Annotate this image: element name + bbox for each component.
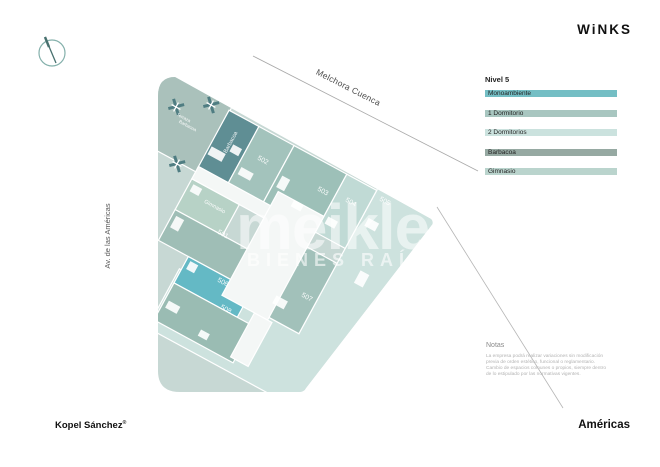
project-name: Américas xyxy=(578,419,630,431)
notes-body: La empresa podrá realizar variaciones si… xyxy=(486,354,606,378)
page: Melchora Cuenca Av. de las Américas xyxy=(0,0,660,467)
legend-title: Nivel 5 xyxy=(485,75,509,84)
compass-icon xyxy=(39,37,65,66)
legend-item: 2 Dormitorios xyxy=(485,129,617,136)
legend-item: 1 Dormitorio xyxy=(485,110,617,117)
street-label-top: Melchora Cuenca xyxy=(314,67,382,108)
legend-items: Monoambiente1 Dormitorio2 DormitoriosBar… xyxy=(485,90,617,188)
registered-mark: ® xyxy=(123,420,127,426)
developer-name: Kopel Sánchez® xyxy=(55,420,126,431)
notes-line: de lo estipulado por las normativas vige… xyxy=(486,372,606,378)
notes-title: Notas xyxy=(486,342,504,349)
legend-item: Barbacoa xyxy=(485,149,617,156)
developer-name-text: Kopel Sánchez xyxy=(55,420,123,431)
legend-item: Gimnasio xyxy=(485,168,617,175)
legend-item: Monoambiente xyxy=(485,90,617,97)
watermark-subtext: BIENES RAÍCES xyxy=(247,250,465,271)
street-label-left: Av. de las Américas xyxy=(103,203,112,268)
winks-logo: WiNKS xyxy=(577,22,632,37)
